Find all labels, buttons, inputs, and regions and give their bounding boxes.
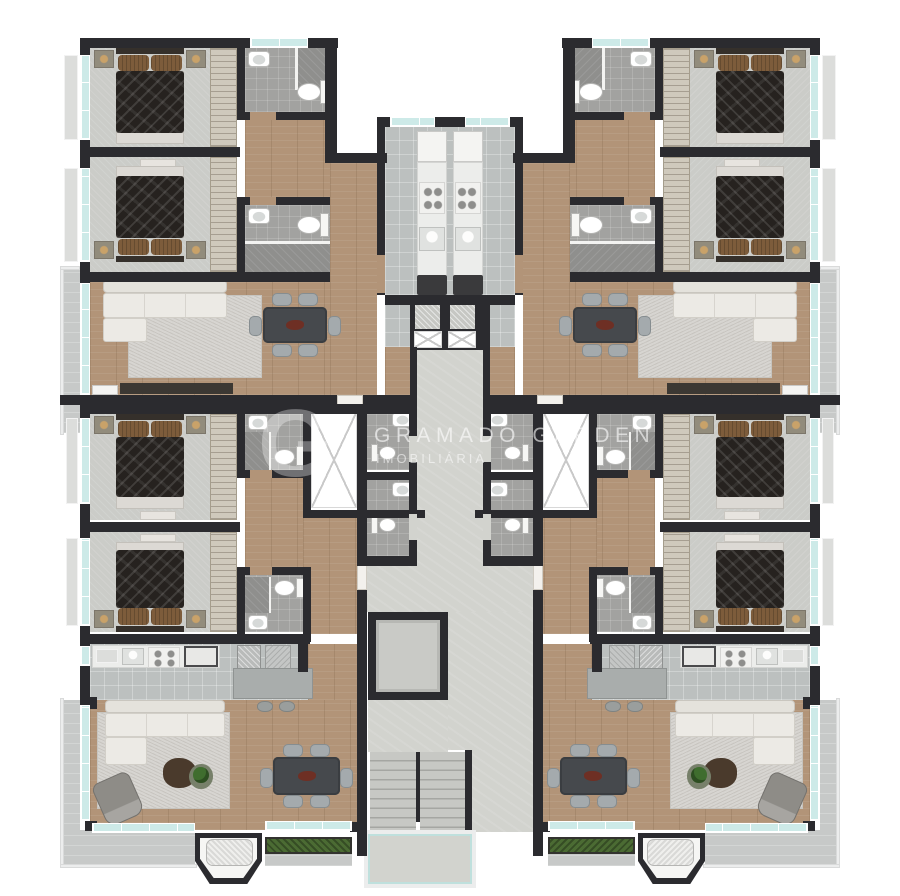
nightstand (186, 416, 206, 434)
nightstand (186, 50, 206, 68)
living-room-window (810, 705, 820, 821)
shower-glass (295, 48, 298, 90)
toilet (579, 83, 603, 101)
shower-glass (602, 48, 605, 90)
pillow (151, 55, 182, 71)
shower-glass (269, 577, 271, 613)
living-room-window (265, 821, 352, 831)
kitchen-service-floor (490, 305, 515, 347)
nightstand (186, 610, 206, 628)
wardrobe (663, 532, 690, 632)
dining-chair (283, 795, 303, 808)
dining-table (263, 307, 327, 343)
nightstand (186, 241, 206, 259)
nightstand (694, 50, 714, 68)
glass-cabinet (237, 645, 261, 670)
toilet-tank (596, 446, 604, 466)
shower-glass (629, 577, 631, 613)
shower (245, 244, 330, 272)
washbasin (632, 615, 652, 630)
sofa-l-shaped (675, 713, 795, 737)
apartment-unit-bottom-left (60, 398, 450, 890)
window-sill (64, 168, 78, 262)
dining-chair (559, 316, 572, 336)
sofa-chaise (103, 318, 147, 342)
counter-board (782, 649, 804, 663)
shower (570, 244, 655, 272)
bed-headboard (116, 48, 184, 54)
centerpiece (286, 320, 304, 330)
kitchen-peninsula (233, 668, 313, 699)
counter-board (96, 649, 118, 663)
door-opening (624, 112, 650, 120)
nightstand (94, 241, 114, 259)
shower (245, 577, 269, 613)
dining-table (273, 757, 340, 795)
bar-stool (257, 701, 273, 712)
door-opening (409, 514, 417, 540)
sideboard (667, 383, 780, 394)
sideboard (120, 383, 233, 394)
bed-bench (724, 511, 760, 520)
balcony-railing (60, 864, 197, 868)
entry-floor (490, 347, 515, 395)
nightstand (786, 416, 806, 434)
pillow (751, 55, 782, 71)
dining-chair (582, 293, 602, 306)
dining-chair (570, 744, 590, 757)
bed-duvet (716, 437, 784, 497)
barbecue-grill-bay (195, 833, 262, 884)
balcony-railing (60, 698, 64, 868)
oven (417, 275, 447, 295)
washbasin (630, 51, 652, 67)
bedroom-window (810, 418, 820, 504)
kitchen-sink (756, 648, 778, 665)
partition-wall (90, 522, 240, 532)
bed-headboard (116, 256, 184, 262)
bed-headboard (716, 48, 784, 54)
entry-door (533, 564, 543, 590)
balcony-railing (836, 698, 840, 868)
exterior-wall (563, 38, 575, 163)
bed-bench (140, 511, 176, 520)
shaft-wall (589, 404, 597, 518)
partition-wall (660, 147, 810, 157)
oven (453, 275, 483, 295)
living-room-window (810, 283, 820, 395)
unit-side-wall (533, 590, 543, 856)
window-sill (822, 168, 836, 262)
bed-headboard (116, 626, 184, 632)
sofa-l-shaped (103, 293, 227, 318)
bathroom-wall (655, 404, 663, 478)
toilet (274, 580, 295, 596)
bed-headboard (716, 414, 784, 420)
centerpiece (585, 771, 603, 781)
toilet (504, 446, 521, 460)
toilet-tank (596, 578, 604, 598)
pillow (118, 239, 149, 255)
balcony-railing (820, 266, 840, 270)
dining-table (573, 307, 637, 343)
service-bath-wall (357, 556, 417, 566)
bathroom-wall (655, 38, 663, 120)
kitchen-window (810, 646, 820, 666)
washbasin (248, 208, 270, 224)
washbasin (630, 208, 652, 224)
door-opening (515, 255, 523, 293)
kitchen-service-floor (385, 305, 410, 347)
pillow (118, 421, 149, 437)
kitchen-wall (590, 634, 820, 644)
dining-chair (638, 316, 651, 336)
watermark-logo: G (258, 396, 333, 492)
pillow (118, 608, 149, 625)
bed-duvet (116, 437, 184, 497)
bathroom-wall (237, 404, 245, 478)
kitchen-wall (385, 295, 452, 305)
barbecue-grill (206, 839, 253, 866)
hallway-floor (570, 120, 655, 197)
dining-chair (283, 744, 303, 757)
pillow (718, 421, 749, 437)
window-sill (64, 55, 78, 140)
nightstand (94, 610, 114, 628)
door-opening (628, 567, 650, 575)
living-room-window (80, 705, 90, 821)
barbecue-grill (647, 839, 694, 866)
bathroom-wall (237, 38, 245, 120)
bathroom-window (592, 38, 650, 48)
bathroom-wall (237, 197, 245, 282)
bedroom-window (80, 55, 90, 140)
service-bath-wall (483, 556, 543, 566)
sofa-l-shaped (105, 713, 225, 737)
entry-door (357, 564, 367, 590)
door-opening (377, 255, 385, 293)
door-opening (250, 197, 276, 205)
kitchen-sink (122, 648, 144, 665)
toilet-tank (371, 516, 378, 534)
refrigerator (417, 131, 447, 162)
nightstand (786, 50, 806, 68)
refrigerator (453, 131, 483, 162)
kitchen-wall (80, 634, 310, 644)
toilet (379, 518, 396, 532)
kitchen-peninsula (587, 668, 667, 699)
kitchen-window (80, 646, 90, 666)
partition-wall (90, 272, 330, 282)
cabinet (782, 385, 808, 395)
barbecue-grill-bay (638, 833, 705, 884)
hallway-floor (523, 163, 570, 395)
cooktop (720, 647, 752, 668)
hallway-floor (303, 518, 357, 634)
washbasin (248, 51, 270, 67)
planter-hedge (548, 837, 635, 854)
service-bath-wall (357, 472, 417, 480)
bed-duvet (116, 550, 184, 608)
nightstand (94, 50, 114, 68)
facade-stub-wall (350, 822, 367, 832)
sofa-back (105, 700, 225, 713)
bed-duvet (716, 176, 784, 238)
window-sill (66, 418, 78, 504)
sofa-back (675, 700, 795, 713)
bathroom-wall (589, 470, 663, 478)
pillow (151, 239, 182, 255)
nightstand (694, 416, 714, 434)
bed-headboard (116, 414, 184, 420)
living-room-window (80, 283, 90, 395)
washing-machine (609, 645, 635, 670)
wardrobe (663, 48, 690, 147)
bedroom-window (80, 538, 90, 626)
pillow (718, 608, 749, 625)
kitchen-sink (455, 227, 481, 251)
bathroom-window (250, 38, 308, 48)
apartment-unit-top-right (450, 30, 840, 410)
balcony-floor (62, 830, 195, 866)
exterior-wall (325, 38, 337, 163)
bathroom-wall (589, 567, 597, 642)
unit-side-wall (357, 404, 367, 564)
glass-cabinet (639, 645, 663, 670)
bathroom-wall (237, 567, 311, 575)
planter-hedge (265, 837, 352, 854)
hallway-floor (597, 478, 655, 567)
wardrobe (663, 157, 690, 272)
dining-chair (260, 768, 273, 788)
dining-table (560, 757, 627, 795)
floor-plan-canvas: G GRAMADO GARDEN IMOBILIÁRIA (0, 0, 900, 896)
kitchen-sink (419, 227, 445, 251)
hallway-floor (330, 163, 377, 395)
potted-plant (691, 767, 707, 783)
door-opening (250, 567, 272, 575)
bathroom-wall (237, 567, 245, 642)
sofa-chaise (753, 737, 795, 765)
dining-chair (608, 344, 628, 357)
balcony-paving (265, 854, 352, 866)
cooktop (148, 647, 180, 668)
cooktop (455, 182, 481, 214)
partition-wall (90, 147, 240, 157)
partition-wall (660, 522, 810, 532)
dining-chair (597, 744, 617, 757)
dining-chair (597, 795, 617, 808)
bed-duvet (716, 71, 784, 133)
kitchen-window (465, 117, 510, 127)
shower (631, 577, 655, 613)
sofa-chaise (753, 318, 797, 342)
dining-chair (608, 293, 628, 306)
hallway-floor (245, 120, 330, 197)
door-opening (483, 514, 491, 540)
pillow (751, 239, 782, 255)
nightstand (694, 610, 714, 628)
pillow (718, 239, 749, 255)
dining-chair (298, 344, 318, 357)
apartment-unit-bottom-right (450, 398, 840, 890)
pillow (751, 608, 782, 625)
door-opening (628, 470, 650, 478)
toilet (579, 216, 603, 234)
bed-duvet (116, 71, 184, 133)
dining-chair (570, 795, 590, 808)
apartment-unit-top-left (60, 30, 450, 410)
balcony-sliding-door (705, 823, 808, 833)
window-sill (822, 418, 834, 504)
bedroom-window (810, 55, 820, 140)
sofa-chaise (105, 737, 147, 765)
balcony-sliding-door (92, 823, 195, 833)
window-sill (66, 538, 78, 626)
living-room-window (548, 821, 635, 831)
oven (682, 646, 716, 667)
bed-bench (140, 534, 176, 542)
watermark-brand: GRAMADO GARDEN (374, 424, 655, 448)
entry-floor (385, 347, 410, 395)
window-sill (822, 55, 836, 140)
balcony-railing (703, 864, 840, 868)
pillow (151, 421, 182, 437)
watermark-tagline: IMOBILIÁRIA (376, 451, 487, 466)
wardrobe (210, 532, 237, 632)
bedroom-window (810, 538, 820, 626)
bar-stool (279, 701, 295, 712)
washing-machine (265, 645, 291, 670)
nightstand (94, 416, 114, 434)
bed-headboard (716, 256, 784, 262)
bathroom-wall (655, 567, 663, 642)
balcony-paving (548, 854, 635, 866)
toilet (605, 580, 626, 596)
door-opening (624, 197, 650, 205)
kitchen-stub-wall (298, 642, 308, 672)
door-opening (250, 112, 276, 120)
wardrobe (210, 414, 237, 520)
bed-bench (724, 534, 760, 542)
dining-chair (272, 293, 292, 306)
oven (184, 646, 218, 667)
sofa-l-shaped (673, 293, 797, 318)
dining-chair (272, 344, 292, 357)
dining-chair (249, 316, 262, 336)
service-bath-wall (483, 472, 543, 480)
dining-chair (582, 344, 602, 357)
window-sill (822, 538, 834, 626)
centerpiece (596, 320, 614, 330)
wardrobe (663, 414, 690, 520)
wardrobe (210, 48, 237, 147)
pillow (118, 55, 149, 71)
pillow (718, 55, 749, 71)
bathroom-wall (589, 567, 663, 575)
shower-glass (570, 241, 655, 244)
bar-stool (627, 701, 643, 712)
bed-headboard (716, 626, 784, 632)
bathroom-wall (655, 197, 663, 282)
bedroom-window (80, 418, 90, 504)
dining-chair (310, 744, 330, 757)
bar-stool (605, 701, 621, 712)
dining-chair (328, 316, 341, 336)
bathroom-wall (303, 567, 311, 642)
toilet (605, 449, 626, 465)
potted-plant (193, 767, 209, 783)
washbasin (248, 615, 268, 630)
partition-wall (570, 272, 810, 282)
bedroom-window (80, 168, 90, 262)
pillow (751, 421, 782, 437)
nightstand (694, 241, 714, 259)
bedroom-window (810, 168, 820, 262)
nightstand (786, 610, 806, 628)
centerpiece (298, 771, 316, 781)
kitchen-wall (448, 295, 515, 305)
dining-chair (627, 768, 640, 788)
toilet (297, 216, 321, 234)
pillow (151, 608, 182, 625)
toilet-tank (320, 213, 329, 237)
kitchen-window (390, 117, 435, 127)
toilet (297, 83, 321, 101)
toilet (504, 518, 521, 532)
unit-side-wall (357, 590, 367, 856)
toilet-tank (522, 516, 529, 534)
dining-chair (340, 768, 353, 788)
dining-chair (547, 768, 560, 788)
balcony-railing (60, 266, 80, 270)
cabinet (92, 385, 118, 395)
shower-glass (245, 241, 330, 244)
cooktop (419, 182, 445, 214)
balcony-floor (705, 830, 838, 866)
dining-chair (298, 293, 318, 306)
nightstand (786, 241, 806, 259)
bed-duvet (716, 550, 784, 608)
bed-duvet (116, 176, 184, 238)
dining-chair (310, 795, 330, 808)
wardrobe (210, 157, 237, 272)
kitchen-stub-wall (592, 642, 602, 672)
